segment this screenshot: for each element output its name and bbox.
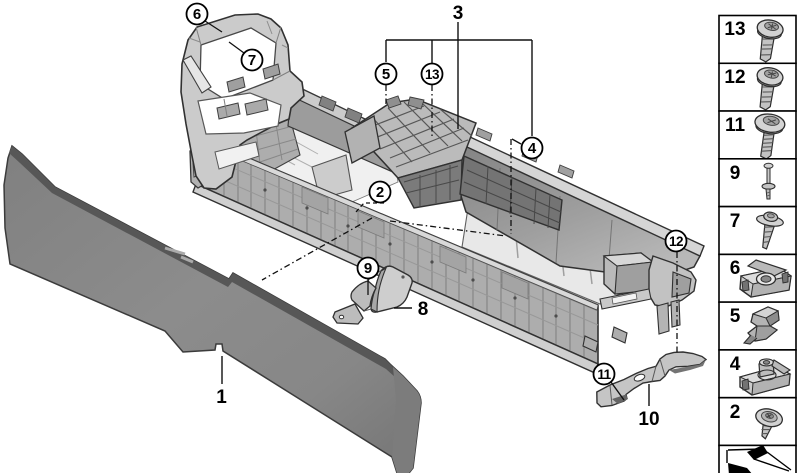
svg-text:13: 13 (724, 19, 745, 40)
svg-text:2: 2 (730, 402, 741, 423)
svg-text:12: 12 (669, 234, 683, 249)
svg-text:9: 9 (730, 163, 741, 184)
svg-text:1: 1 (216, 387, 227, 408)
svg-text:4: 4 (528, 140, 537, 157)
svg-text:10: 10 (638, 409, 659, 430)
svg-text:9: 9 (364, 260, 372, 277)
svg-text:5: 5 (382, 66, 390, 83)
svg-text:8: 8 (418, 299, 429, 320)
svg-text:4: 4 (730, 354, 741, 375)
svg-text:6: 6 (730, 258, 741, 279)
svg-text:12: 12 (724, 67, 745, 88)
svg-text:13: 13 (425, 67, 440, 82)
svg-text:5: 5 (730, 306, 741, 327)
svg-text:7: 7 (248, 52, 256, 69)
svg-text:11: 11 (725, 115, 746, 136)
svg-text:6: 6 (193, 6, 201, 23)
svg-text:11: 11 (597, 367, 611, 382)
svg-text:2: 2 (376, 184, 384, 201)
svg-text:3: 3 (453, 3, 464, 24)
svg-text:7: 7 (730, 211, 741, 232)
